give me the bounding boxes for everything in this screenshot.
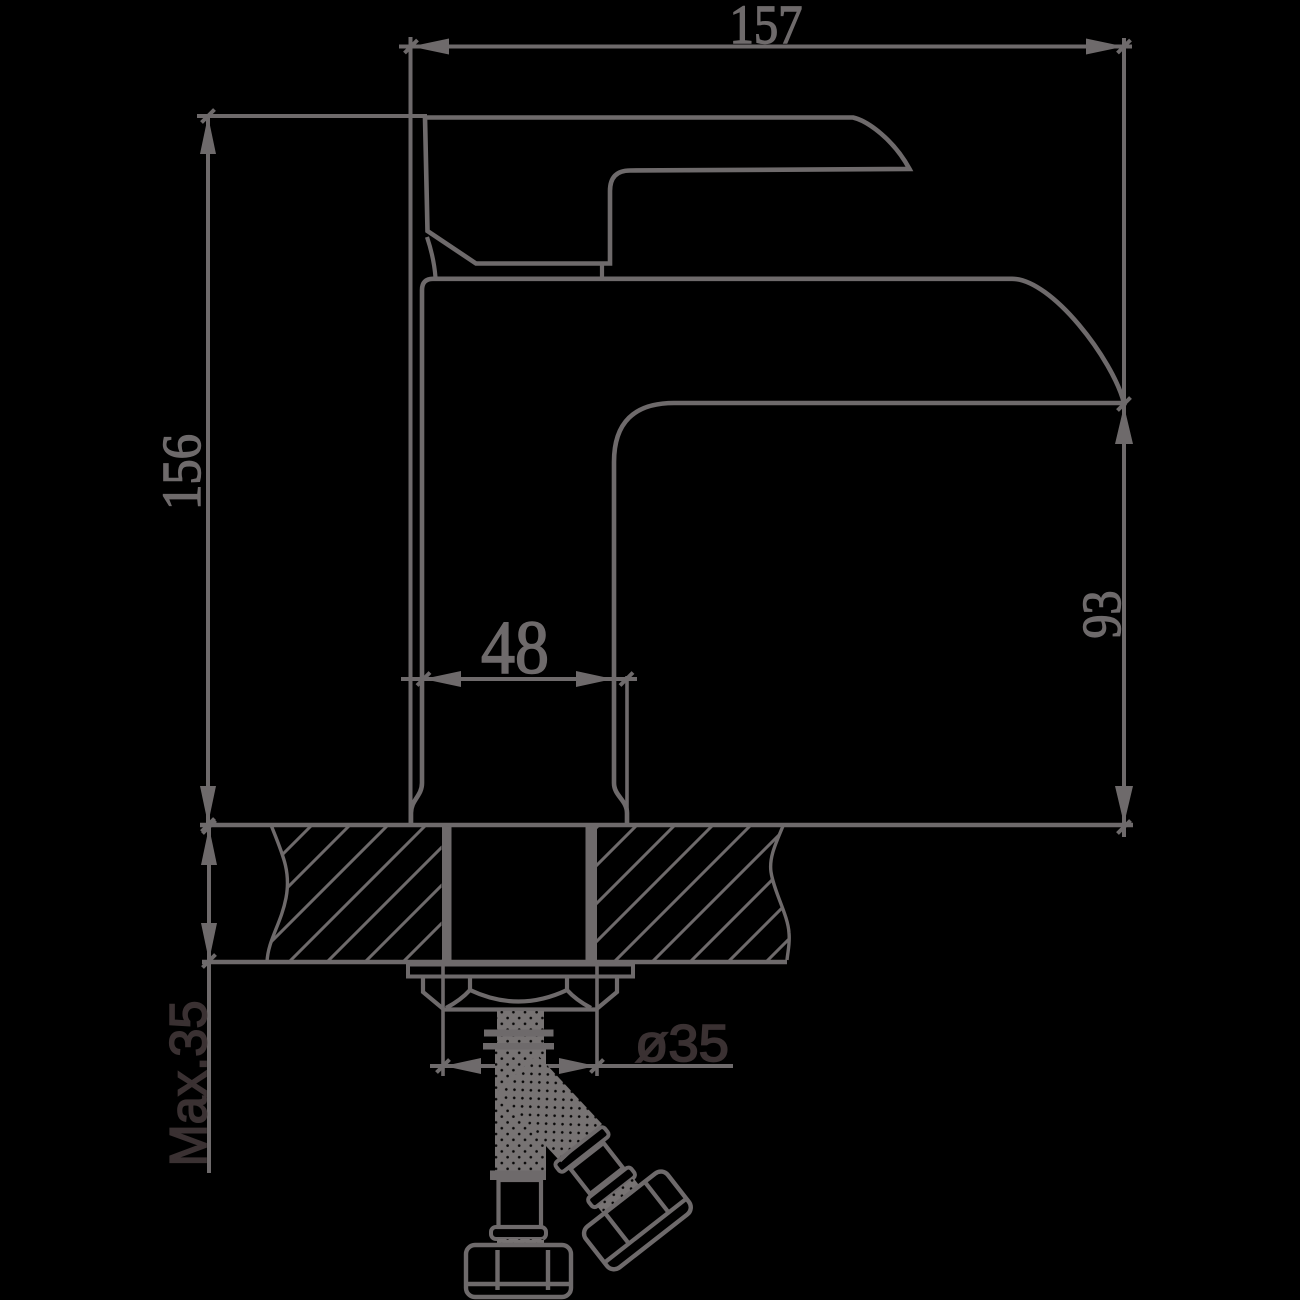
svg-text:ø35: ø35	[635, 1015, 729, 1073]
svg-text:48: 48	[481, 606, 549, 690]
svg-text:156: 156	[151, 434, 212, 510]
svg-text:157: 157	[730, 0, 803, 55]
svg-text:93: 93	[1071, 591, 1132, 639]
svg-text:Max.35: Max.35	[160, 1001, 218, 1167]
